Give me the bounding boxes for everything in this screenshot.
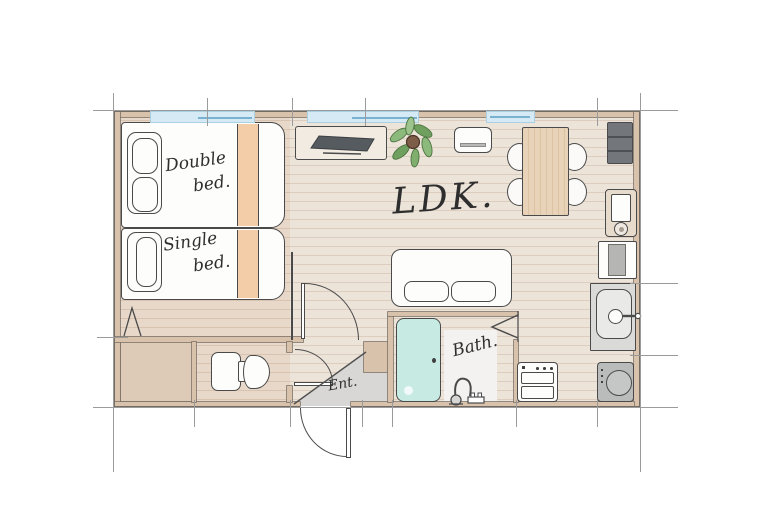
dimension-tick [516,400,517,427]
dimension-tick [207,98,208,126]
dimension-tick [290,400,291,427]
closet-door-mark [124,308,141,336]
tv [311,136,374,154]
dimension-tick [362,400,363,427]
dimension-tick [630,355,678,356]
details-overlay [0,0,768,512]
dimension-tick [97,337,128,338]
dimension-line-top [93,110,678,111]
dimension-line-bottom [93,407,678,408]
dimension-tick [630,283,678,284]
sink-faucet-handle [623,313,641,318]
dimension-tick [597,400,598,427]
dimension-line-left [113,93,114,472]
dimension-tick [194,400,195,427]
ldk-label: LDK. [391,174,497,222]
dimension-tick [597,98,598,126]
dimension-tick [365,98,366,126]
dimension-tick [292,98,293,126]
shower-faucet [449,379,484,405]
floor-plan: Double bed. Single bed. Bath. [0,0,768,512]
potted-plant [388,116,434,167]
dimension-tick [392,400,393,427]
